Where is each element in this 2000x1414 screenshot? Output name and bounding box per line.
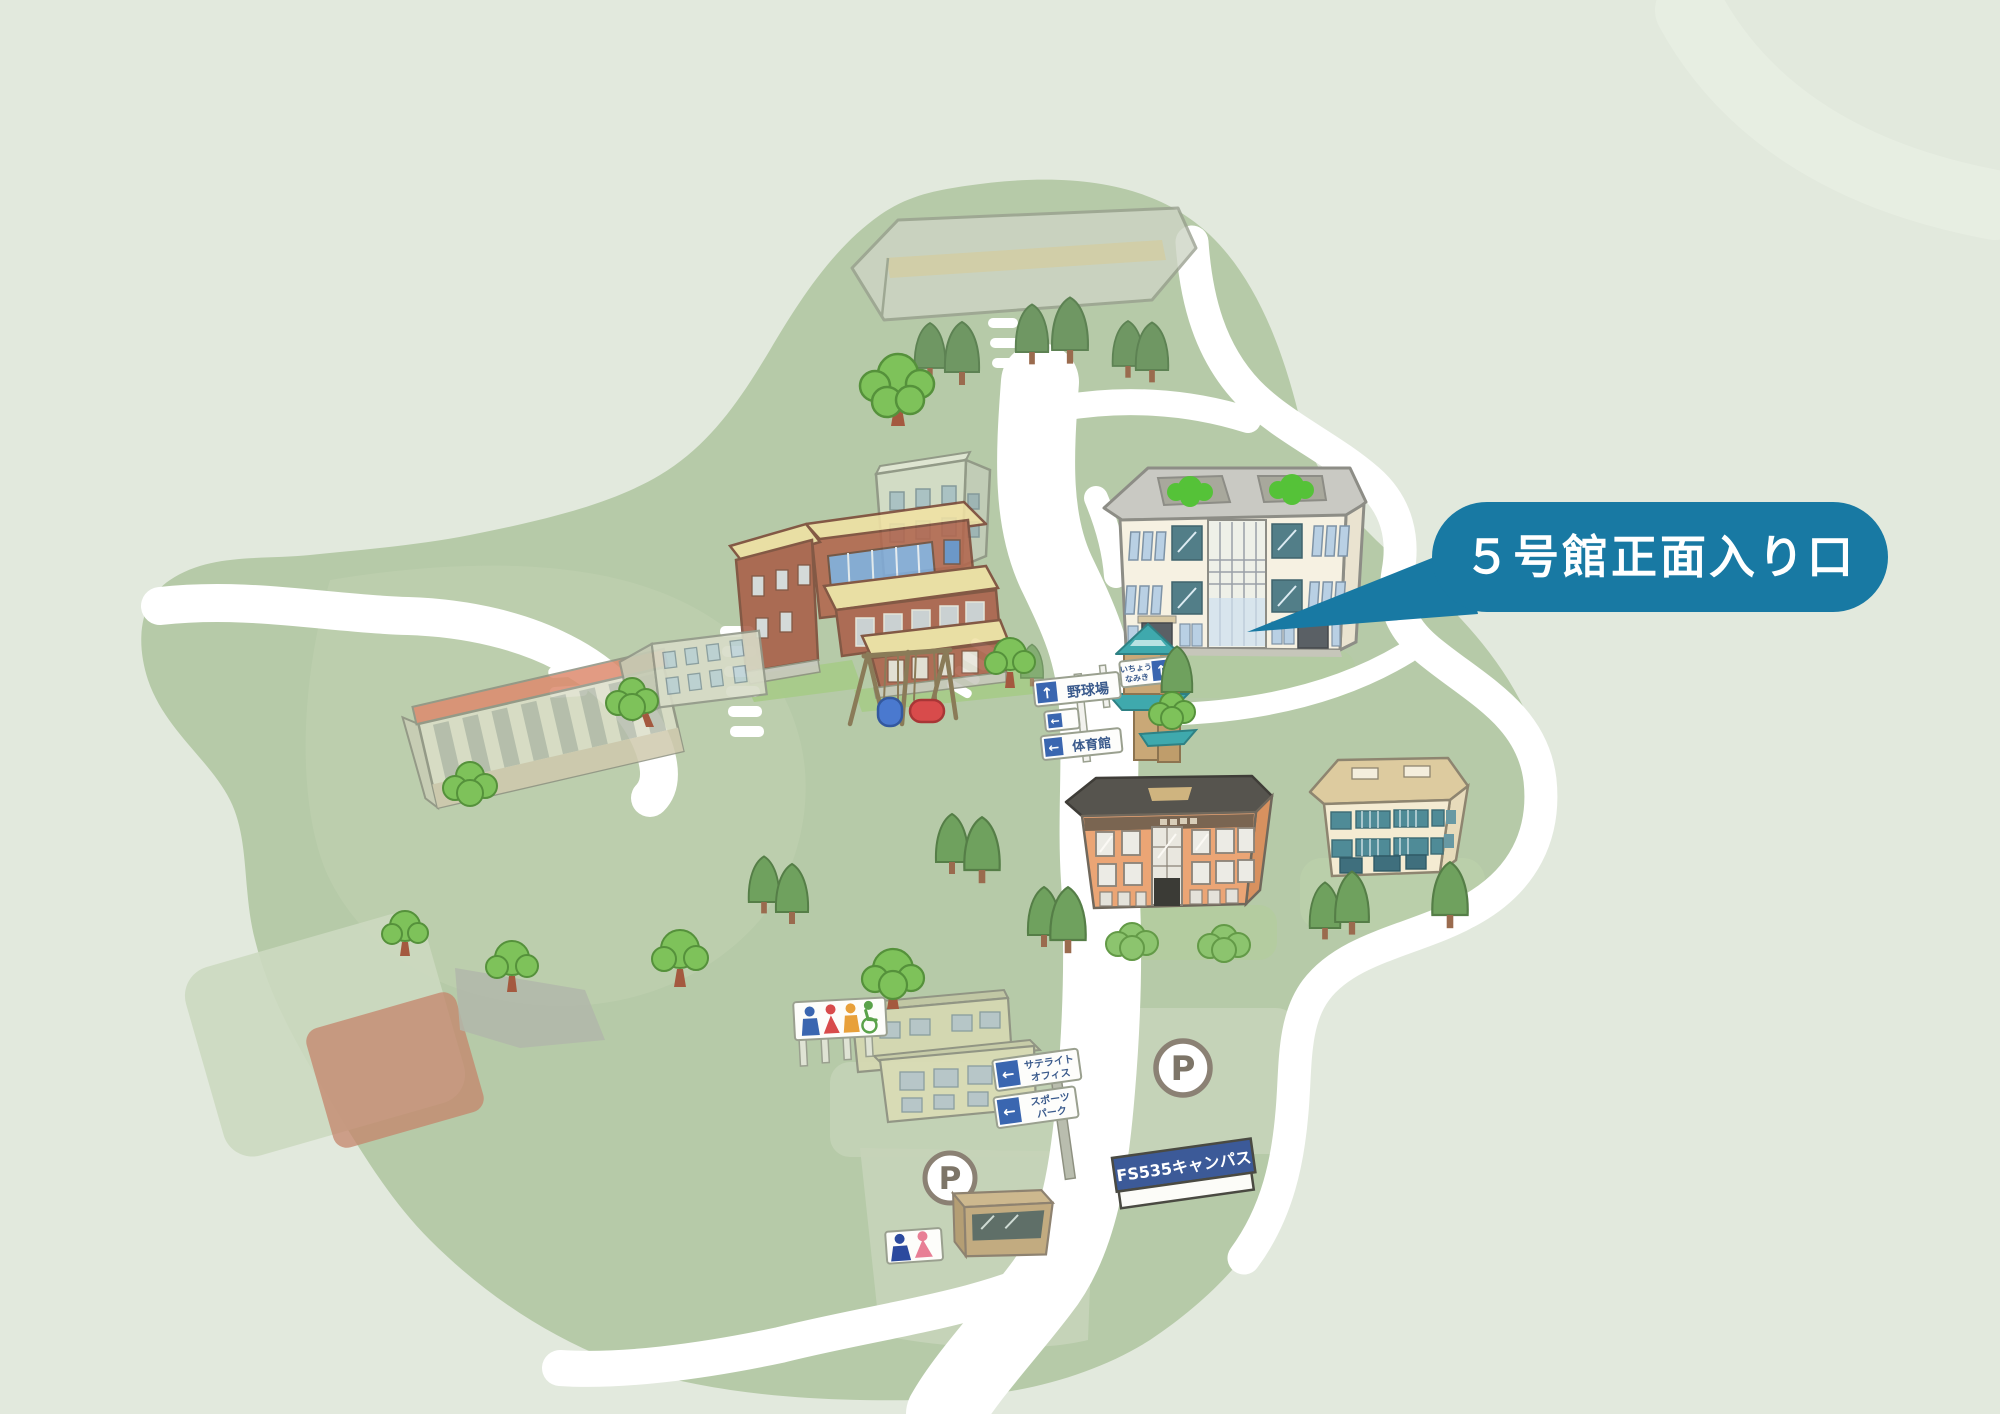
callout-label: ５号館正面入り口: [1464, 530, 1856, 584]
sign-small-left: ←: [1044, 708, 1080, 731]
campus-map: ↑ 野球場 ↑ いちょう なみき ← ← 体育館: [0, 0, 2000, 1414]
building-cream: [1310, 758, 1468, 876]
swing-seat-red: [910, 700, 944, 722]
arrow-left-icon: ←: [1050, 714, 1061, 728]
bus-shelter: [950, 1186, 1054, 1261]
campus-map-canvas: ↑ 野球場 ↑ いちょう なみき ← ← 体育館: [0, 0, 2000, 1414]
arrow-left-icon: ←: [1001, 1065, 1016, 1085]
parking-icon-east: P: [1156, 1041, 1210, 1095]
arrow-left-icon: ←: [1048, 740, 1061, 756]
svg-text:P: P: [939, 1161, 962, 1197]
building-orange: [1066, 776, 1272, 908]
swing-seat-blue: [878, 698, 902, 726]
toilet-sign: [885, 1228, 943, 1264]
svg-text:P: P: [1171, 1049, 1196, 1089]
arrow-left-icon: ←: [1002, 1102, 1017, 1122]
arrow-up-icon: ↑: [1040, 684, 1054, 703]
